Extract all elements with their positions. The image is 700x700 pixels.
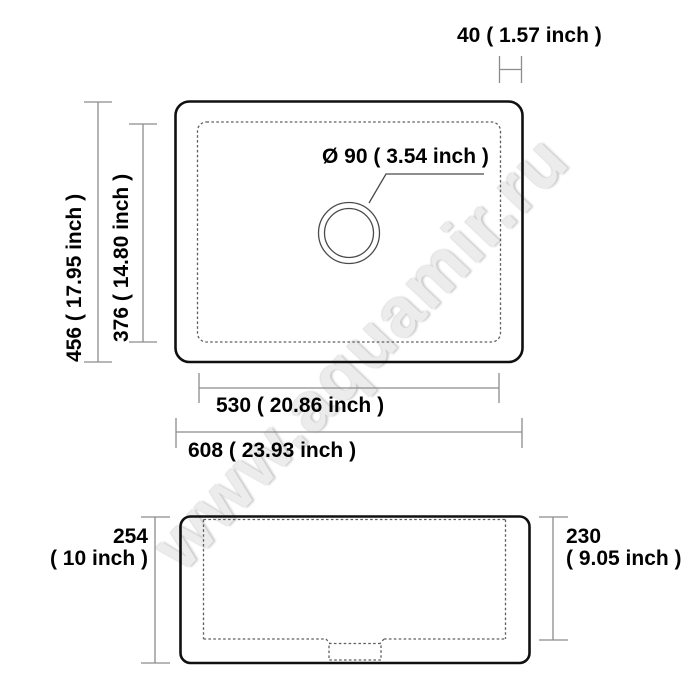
dim-bracket-40	[500, 56, 522, 83]
label-outer-width: 608 ( 23.93 inch )	[188, 440, 356, 462]
sink-side-basin-dashed	[204, 520, 506, 644]
label-side-height: 254 ( 10 inch )	[30, 526, 148, 570]
label-side-depth-inch: ( 9.05 inch )	[566, 548, 682, 570]
sink-technical-drawing: www.aquamir.ru 40 ( 1.57 inch )	[0, 0, 700, 700]
label-inner-width: 530 ( 20.86 inch )	[216, 395, 384, 417]
label-drain-diameter: Ø 90 ( 3.54 inch )	[322, 146, 489, 168]
dim-line-230	[539, 517, 568, 640]
sink-side-outer-outline	[181, 517, 530, 664]
dim-line-456	[84, 102, 112, 362]
sink-side-drain-dashed	[329, 644, 381, 661]
drain-outer-circle	[319, 203, 380, 264]
drawing-lines	[0, 0, 700, 700]
label-outer-height: 456 ( 17.95 inch )	[64, 194, 86, 362]
drain-inner-circle	[325, 209, 374, 258]
drain-leader-line	[369, 174, 484, 203]
dim-line-376	[129, 124, 157, 342]
label-inner-height: 376 ( 14.80 inch )	[111, 174, 133, 342]
sink-top-view	[176, 102, 523, 363]
sink-side-view	[181, 517, 530, 664]
label-side-depth-mm: 230	[566, 526, 682, 548]
label-rim-width: 40 ( 1.57 inch )	[457, 25, 602, 47]
label-side-depth: 230 ( 9.05 inch )	[566, 526, 682, 570]
label-side-height-mm: 254	[30, 526, 148, 548]
sink-top-outer-outline	[176, 102, 523, 363]
label-side-height-inch: ( 10 inch )	[30, 548, 148, 570]
